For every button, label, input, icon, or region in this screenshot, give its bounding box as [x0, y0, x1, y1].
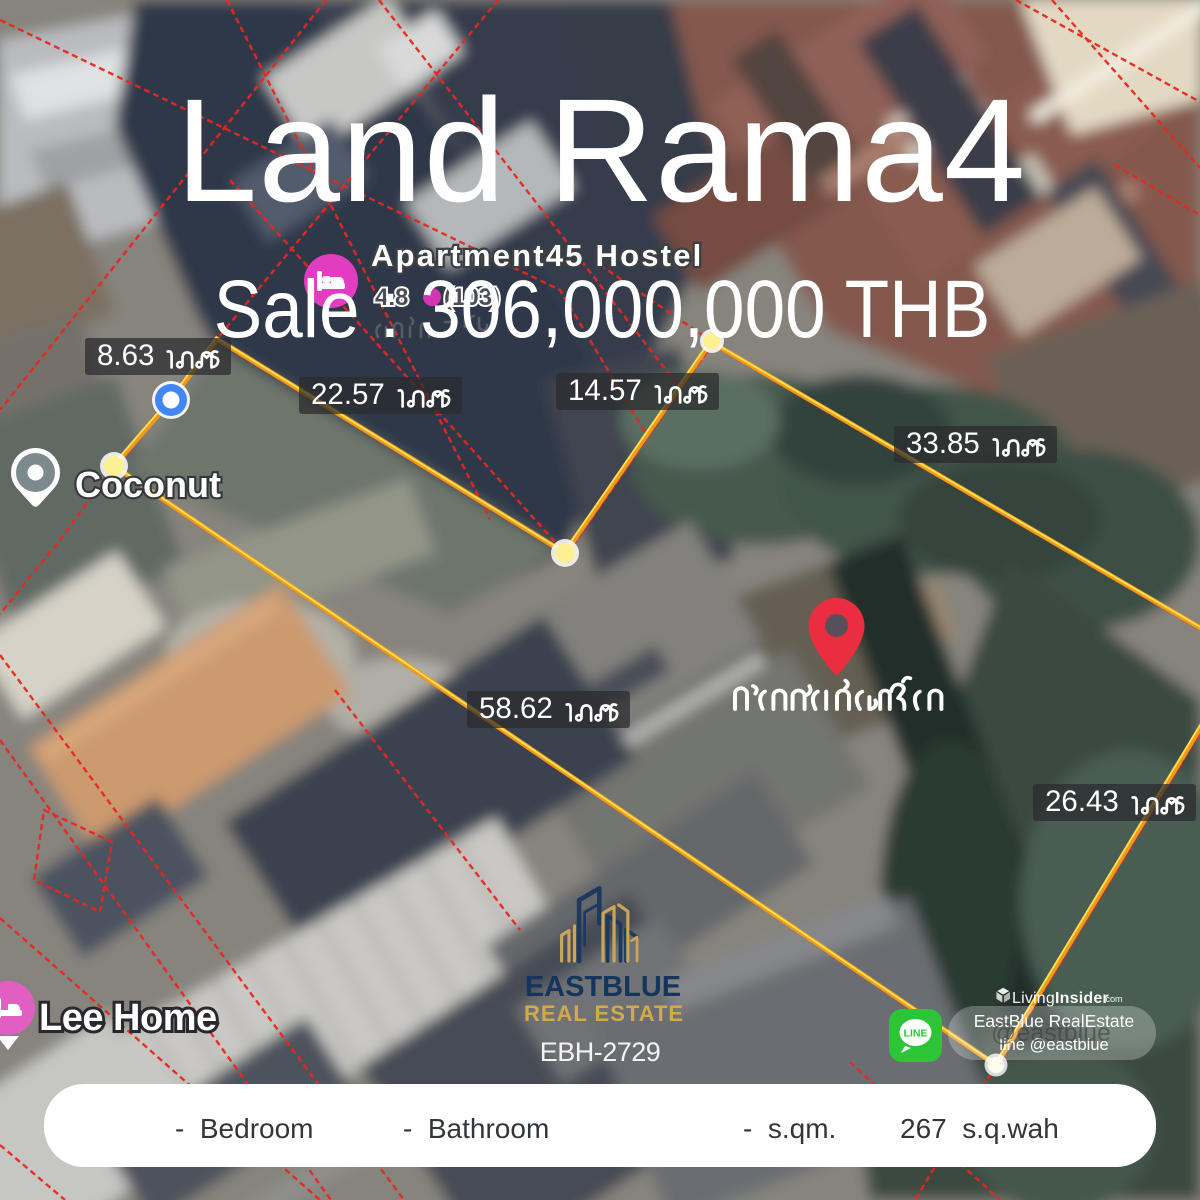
svg-text:.com: .com: [1103, 994, 1123, 1004]
svg-text:EASTBLUE: EASTBLUE: [525, 971, 681, 1003]
svg-text:Living: Living: [1012, 990, 1055, 1007]
svg-text:Insider: Insider: [1055, 990, 1109, 1007]
svg-text:Coconut: Coconut: [75, 464, 221, 505]
svg-text:LINE: LINE: [904, 1028, 928, 1040]
svg-text:@eastblue: @eastblue: [991, 1019, 1111, 1047]
svg-text:Lee Home: Lee Home: [39, 997, 217, 1039]
svg-text:EBH-2729: EBH-2729: [540, 1037, 661, 1067]
svg-text:REAL ESTATE: REAL ESTATE: [524, 1001, 684, 1026]
